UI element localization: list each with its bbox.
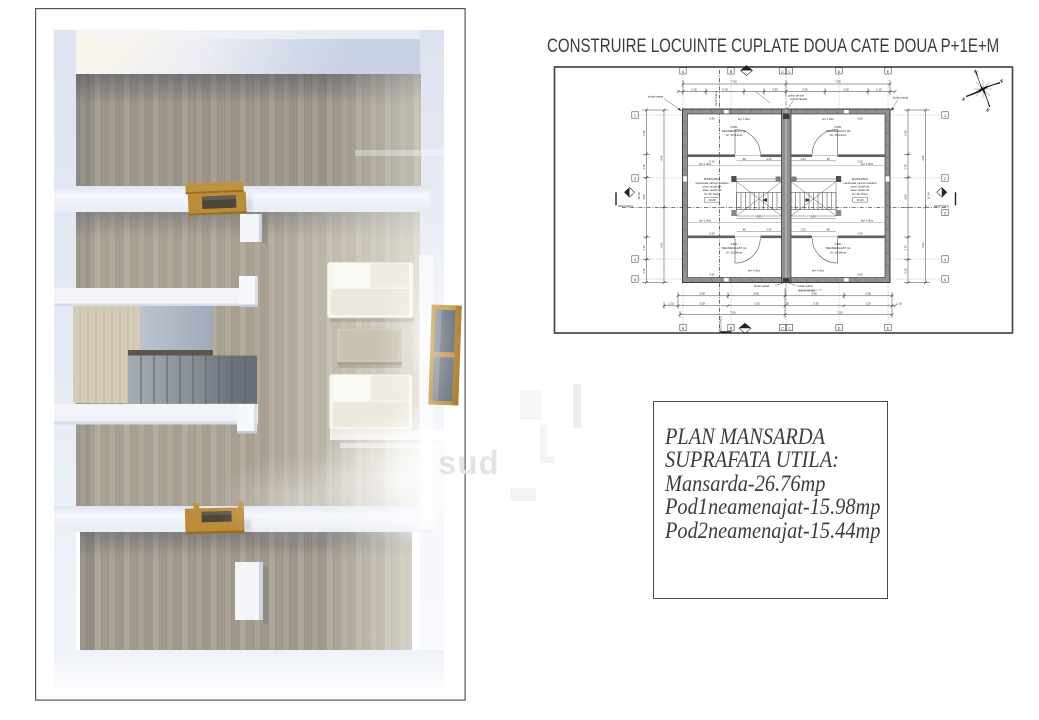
svg-text:1.75: 1.75 xyxy=(904,164,908,170)
svg-text:MANSARDA: MANSARDA xyxy=(704,177,720,181)
svg-text:hp= 1.90m: hp= 1.90m xyxy=(861,162,873,166)
svg-text:pardoseala: parchet stratifica: pardoseala: parchet stratificat xyxy=(696,182,729,185)
svg-text:3.08: 3.08 xyxy=(753,292,759,296)
svg-text:NEAMENAJAT 02: NEAMENAJAT 02 xyxy=(722,129,747,133)
svg-text:5: 5 xyxy=(634,278,636,282)
svg-text:3.35: 3.35 xyxy=(813,302,819,306)
svg-text:7.00: 7.00 xyxy=(730,310,736,314)
svg-text:7.00: 7.00 xyxy=(731,80,737,84)
svg-text:SECTIUNE A: SECTIUNE A xyxy=(618,205,633,208)
svg-text:pardoseala: parchet stratifica: pardoseala: parchet stratificat xyxy=(844,182,877,185)
svg-text:SECTIUNE A: SECTIUNE A xyxy=(715,91,718,106)
svg-text:NEAMENAJAT 01: NEAMENAJAT 01 xyxy=(826,246,851,250)
svg-text:.80: .80 xyxy=(742,228,746,232)
svg-text:2: 2 xyxy=(944,177,946,181)
svg-text:C: C xyxy=(781,327,784,331)
svg-text:5: 5 xyxy=(944,278,946,282)
svg-text:2.15: 2.15 xyxy=(876,87,882,91)
svg-text:1.75: 1.75 xyxy=(642,164,646,170)
svg-text:3.28: 3.28 xyxy=(699,302,705,306)
svg-text:cutii de filtratie: cutii de filtratie xyxy=(790,97,808,101)
svg-text:5.28: 5.28 xyxy=(722,87,728,91)
svg-text:11.34: 11.34 xyxy=(927,192,931,200)
svg-text:4.45: 4.45 xyxy=(660,155,664,161)
svg-text:D: D xyxy=(838,327,841,331)
svg-text:3: 3 xyxy=(944,212,946,216)
svg-text:6.30: 6.30 xyxy=(857,159,863,163)
svg-text:6.30: 6.30 xyxy=(857,232,863,236)
svg-text:hp= 1.90m: hp= 1.90m xyxy=(861,219,873,223)
svg-text:6.90: 6.90 xyxy=(709,273,715,277)
svg-text:S= 15.98mp: S= 15.98mp xyxy=(726,250,743,254)
svg-text:±0.00: ±0.00 xyxy=(856,198,864,202)
svg-text:1.70: 1.70 xyxy=(642,245,646,251)
svg-text:C: C xyxy=(781,70,784,74)
svg-text:burlan patrat: burlan patrat xyxy=(893,95,908,99)
svg-text:S= 26.76mp: S= 26.76mp xyxy=(704,192,720,196)
svg-text:1.70: 1.70 xyxy=(904,245,908,251)
svg-text:S= 15.44mp: S= 15.44mp xyxy=(726,133,743,137)
svg-text:pereti: lavabil alb: pereti: lavabil alb xyxy=(703,185,722,188)
svg-text:4.31: 4.31 xyxy=(921,242,925,248)
svg-text:4: 4 xyxy=(634,258,636,262)
svg-text:burlan patrat: burlan patrat xyxy=(648,94,663,98)
svg-text:C: C xyxy=(788,70,791,74)
svg-text:2.15: 2.15 xyxy=(642,268,646,274)
svg-text:2.15: 2.15 xyxy=(904,268,908,274)
svg-text:S= 26.76mp: S= 26.76mp xyxy=(852,192,868,196)
svg-text:2.15: 2.15 xyxy=(896,302,902,306)
svg-text:6.30: 6.30 xyxy=(709,232,715,236)
svg-text:hp= 1.00m: hp= 1.00m xyxy=(738,117,750,121)
svg-text:3.03: 3.03 xyxy=(810,215,816,219)
svg-text:3.45: 3.45 xyxy=(642,130,646,136)
svg-text:3.03: 3.03 xyxy=(756,215,762,219)
svg-text:6.90: 6.90 xyxy=(709,117,715,121)
svg-text:4.55: 4.55 xyxy=(904,194,908,200)
svg-text:1: 1 xyxy=(634,114,636,118)
svg-text:.80: .80 xyxy=(826,157,830,161)
svg-text:2.15: 2.15 xyxy=(668,302,674,306)
svg-text:4.31: 4.31 xyxy=(660,242,664,248)
svg-text:3.35: 3.35 xyxy=(772,87,778,91)
svg-text:3.35: 3.35 xyxy=(802,87,808,91)
svg-text:burlan patrat: burlan patrat xyxy=(754,284,769,288)
svg-text:hp= 1.00m: hp= 1.00m xyxy=(822,117,834,121)
svg-text:NEAMENAJAT 01: NEAMENAJAT 01 xyxy=(722,246,747,250)
svg-text:7.00: 7.00 xyxy=(837,310,843,314)
svg-text:1: 1 xyxy=(944,114,946,118)
svg-text:5.28: 5.28 xyxy=(843,87,849,91)
svg-text:6.30: 6.30 xyxy=(709,159,715,163)
svg-text:3.45: 3.45 xyxy=(904,130,908,136)
svg-text:4: 4 xyxy=(944,258,946,262)
svg-text:.80: .80 xyxy=(742,157,746,161)
svg-text:MANSARDA: MANSARDA xyxy=(852,177,868,181)
svg-text:S= 15.44mp: S= 15.44mp xyxy=(830,133,847,137)
svg-text:7.00: 7.00 xyxy=(835,80,841,84)
svg-text:3.28: 3.28 xyxy=(699,292,705,296)
svg-text:hp= 4.02m: hp= 4.02m xyxy=(812,269,824,273)
svg-text:3.28: 3.28 xyxy=(865,292,871,296)
svg-text:SECTIUNE A: SECTIUNE A xyxy=(720,316,723,331)
svg-text:4.45: 4.45 xyxy=(921,155,925,161)
svg-text:SECTIUNE A: SECTIUNE A xyxy=(934,205,949,208)
svg-text:.80: .80 xyxy=(826,228,830,232)
svg-text:hp= 1.90m: hp= 1.90m xyxy=(699,219,711,223)
svg-text:2.30: 2.30 xyxy=(800,157,806,161)
svg-text:S= 15.98mp: S= 15.98mp xyxy=(830,250,847,254)
svg-text:3.29: 3.29 xyxy=(865,302,871,306)
svg-text:cutii de filtratie: cutii de filtratie xyxy=(798,289,816,293)
svg-text:2.30: 2.30 xyxy=(766,157,772,161)
svg-text:D: D xyxy=(838,70,841,74)
svg-text:2.15: 2.15 xyxy=(691,87,697,91)
svg-text:NEAMENAJAT 02: NEAMENAJAT 02 xyxy=(826,129,851,133)
svg-text:2: 2 xyxy=(634,177,636,181)
svg-text:2.30: 2.30 xyxy=(766,228,772,232)
svg-text:burlan patrat: burlan patrat xyxy=(798,284,813,288)
svg-text:6.90: 6.90 xyxy=(857,273,863,277)
svg-text:pereti: lavabil alb: pereti: lavabil alb xyxy=(851,185,870,188)
svg-text:hp= 4.02m: hp= 4.02m xyxy=(748,269,760,273)
svg-text:10.38: 10.38 xyxy=(637,192,641,200)
svg-text:4.55: 4.55 xyxy=(642,194,646,200)
svg-text:3.35: 3.35 xyxy=(754,302,760,306)
svg-text:C: C xyxy=(788,327,791,331)
svg-text:6.90: 6.90 xyxy=(857,117,863,121)
svg-text:±0.00: ±0.00 xyxy=(708,198,716,202)
svg-text:2.30: 2.30 xyxy=(800,228,806,232)
svg-text:cosuri de fum: cosuri de fum xyxy=(788,94,805,98)
